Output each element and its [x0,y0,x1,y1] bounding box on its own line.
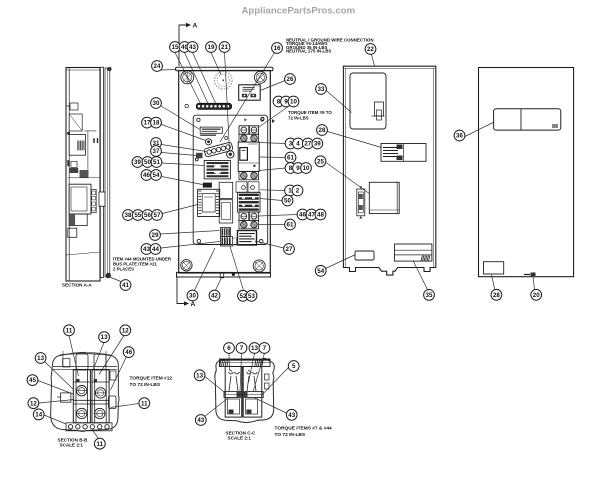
svg-text:36: 36 [456,133,463,140]
svg-text:12: 12 [30,400,37,407]
svg-text:61: 61 [287,222,294,229]
svg-text:18: 18 [153,120,160,127]
svg-text:44: 44 [152,246,159,253]
svg-text:5: 5 [292,363,296,370]
svg-text:24: 24 [154,63,161,70]
svg-text:7: 7 [240,345,244,352]
svg-text:33: 33 [318,86,325,93]
svg-text:SECTION A-A: SECTION A-A [62,283,92,288]
svg-text:11: 11 [141,400,148,407]
svg-text:43: 43 [288,412,295,419]
svg-text:15: 15 [172,44,179,51]
svg-text:43: 43 [189,44,196,51]
svg-text:29: 29 [152,232,159,239]
svg-text:61: 61 [287,155,294,162]
svg-text:SCALE 2:1: SCALE 2:1 [60,442,84,447]
svg-text:50: 50 [284,198,291,205]
svg-text:12: 12 [122,327,129,334]
svg-text:19: 19 [208,44,215,51]
svg-text:9: 9 [296,165,300,172]
svg-text:14: 14 [35,412,42,419]
svg-text:43: 43 [197,417,204,424]
svg-text:22: 22 [367,46,374,53]
svg-text:NEUTRAL 275 IN-LBS: NEUTRAL 275 IN-LBS [286,49,331,54]
svg-text:27: 27 [304,141,311,148]
svg-text:28: 28 [493,292,500,299]
svg-text:TORQUE ITEM #12: TORQUE ITEM #12 [130,376,173,382]
svg-text:35: 35 [426,292,433,299]
svg-text:46: 46 [125,349,132,356]
svg-text:10: 10 [303,165,310,172]
svg-text:25: 25 [317,158,324,165]
svg-text:30: 30 [189,293,196,300]
svg-text:53: 53 [248,293,255,300]
svg-text:11: 11 [97,441,104,448]
svg-text:51: 51 [153,159,160,166]
svg-text:37: 37 [153,148,160,155]
svg-text:20: 20 [533,292,540,299]
svg-text:7: 7 [263,345,267,352]
svg-text:47: 47 [308,212,315,219]
svg-text:TO 72 IN-LBS: TO 72 IN-LBS [130,382,161,388]
svg-text:46: 46 [143,172,150,179]
svg-text:TORQUE ITEMS #7 & #44: TORQUE ITEMS #7 & #44 [275,426,333,432]
svg-text:72 IN-LBS: 72 IN-LBS [288,116,309,121]
svg-text:A: A [191,301,196,308]
svg-text:2: 2 [296,188,300,195]
svg-text:39: 39 [134,159,141,166]
svg-text:AppliancePartsPros.com: AppliancePartsPros.com [242,5,356,16]
svg-text:21: 21 [221,44,228,51]
svg-text:57: 57 [154,212,161,219]
svg-text:56: 56 [144,212,151,219]
svg-text:13: 13 [251,345,258,352]
svg-text:30: 30 [153,100,160,107]
svg-text:17: 17 [144,120,151,127]
svg-text:43: 43 [143,246,150,253]
svg-text:11: 11 [66,327,73,334]
svg-text:13: 13 [37,355,44,362]
svg-text:54: 54 [153,172,160,179]
svg-text:39: 39 [314,141,321,148]
svg-text:4: 4 [296,141,300,148]
svg-text:13: 13 [196,372,203,379]
svg-text:45: 45 [29,377,36,384]
svg-text:A: A [193,23,198,30]
svg-text:54: 54 [317,268,324,275]
svg-text:13: 13 [101,334,108,341]
svg-text:SCALE 2:1: SCALE 2:1 [228,435,252,440]
svg-text:TO 72 IN-LBS: TO 72 IN-LBS [275,432,306,438]
svg-text:TORQUE ITEM #9 TO: TORQUE ITEM #9 TO [288,110,332,115]
svg-text:38: 38 [125,212,132,219]
svg-text:41: 41 [122,282,129,289]
svg-text:28: 28 [319,127,326,134]
svg-text:48: 48 [317,212,324,219]
svg-text:55: 55 [134,212,141,219]
svg-text:16: 16 [274,45,281,52]
svg-text:26: 26 [287,76,294,83]
svg-text:50: 50 [144,159,151,166]
svg-text:46: 46 [299,212,306,219]
svg-text:6: 6 [227,345,231,352]
svg-text:42: 42 [211,293,218,300]
svg-text:10: 10 [290,99,297,106]
svg-text:27: 27 [286,246,293,253]
svg-text:2 PLACES: 2 PLACES [113,267,134,272]
